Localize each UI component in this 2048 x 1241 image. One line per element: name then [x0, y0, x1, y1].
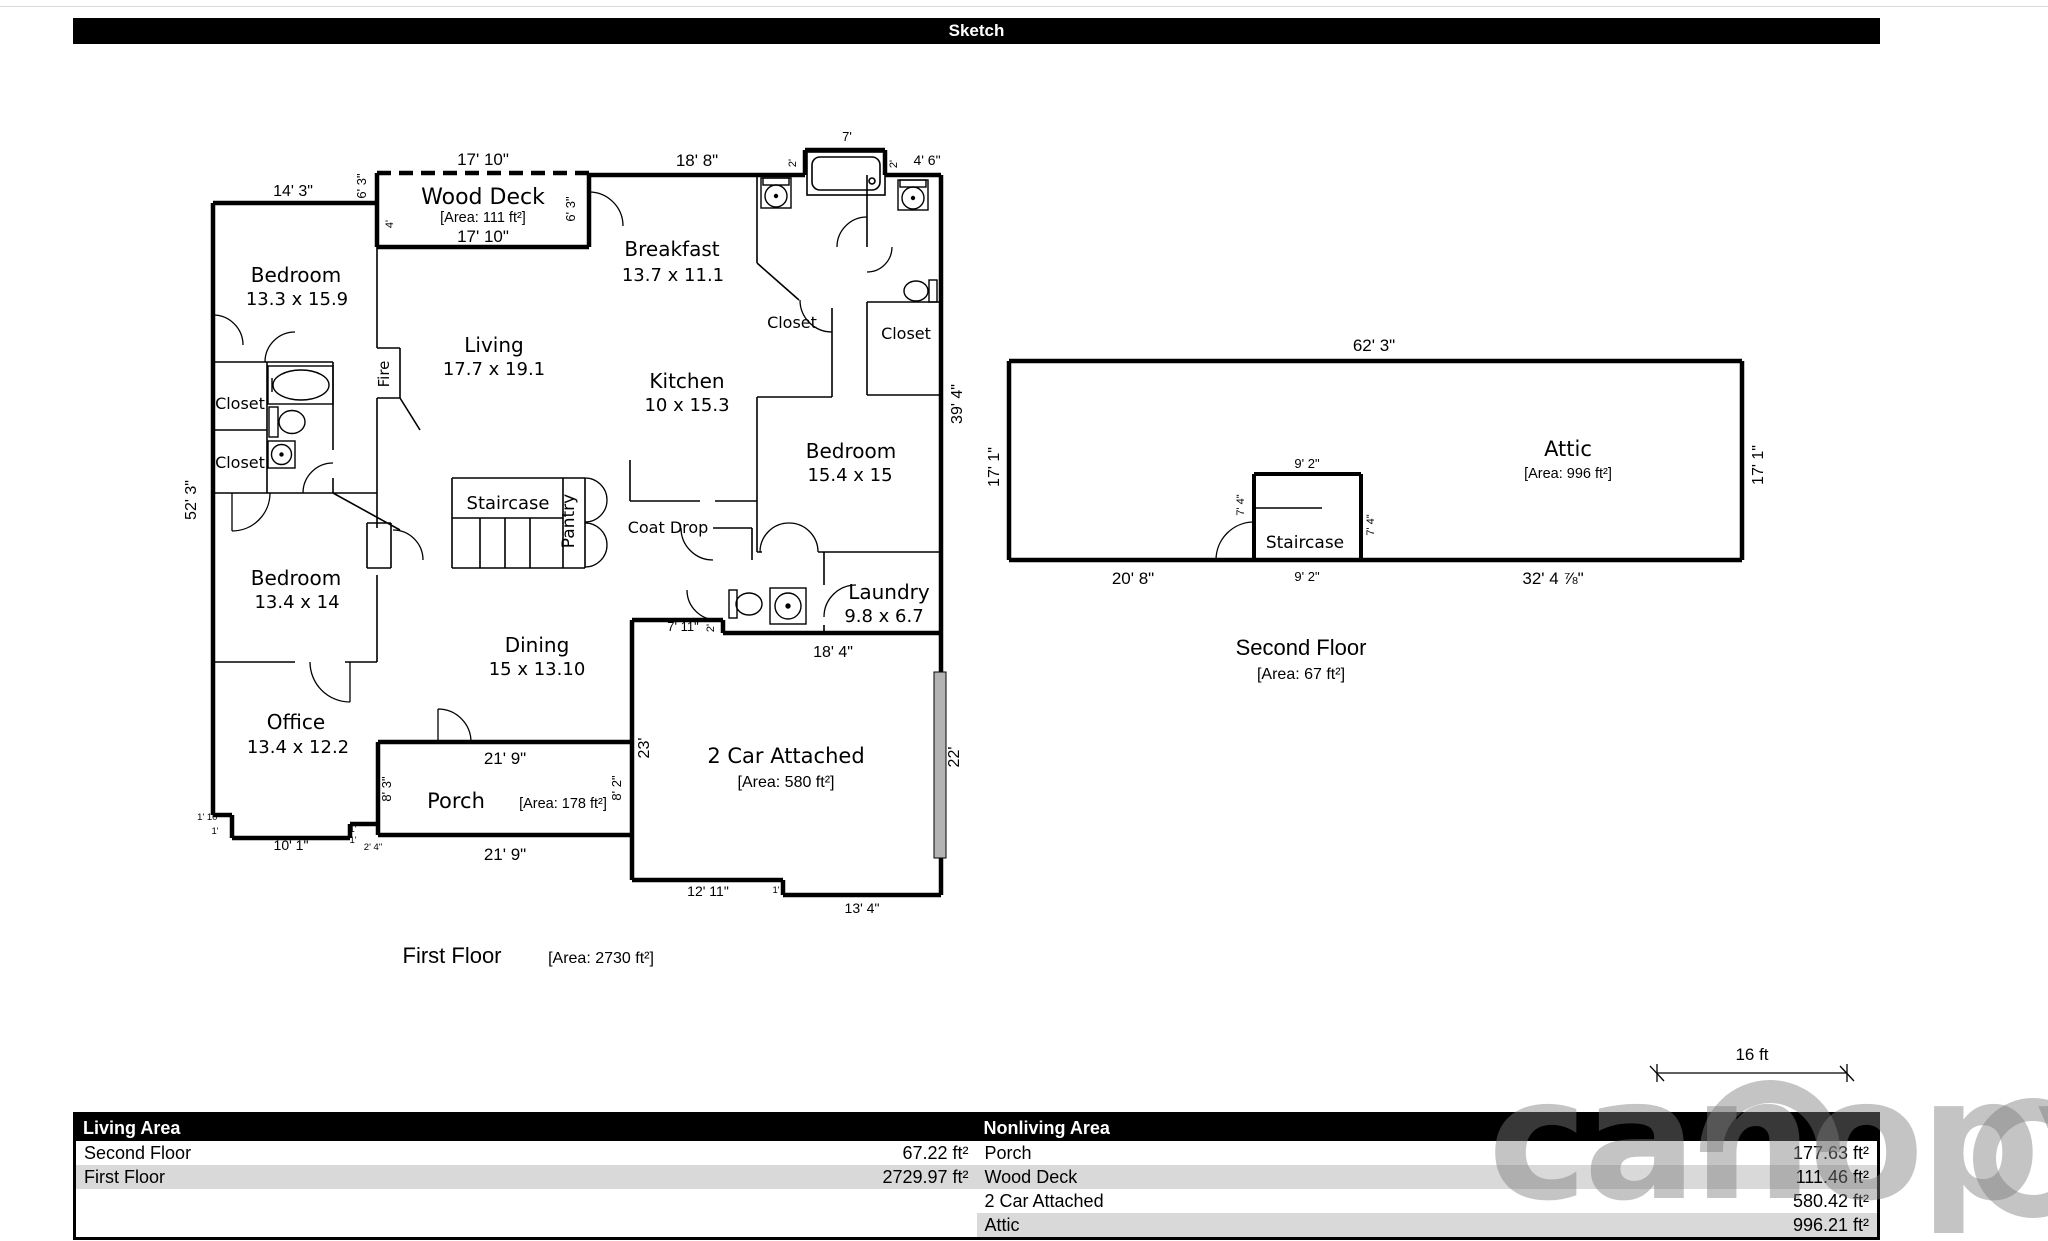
- dim-1ft-step2: 1': [349, 835, 356, 846]
- dim-18-8: 18' 8": [676, 151, 718, 170]
- sink-icon: [268, 441, 295, 468]
- row-value: 111.46 ft²: [1796, 1167, 1869, 1188]
- area-summary-table: Living Area Second Floor 67.22 ft² First…: [73, 1112, 1880, 1240]
- room-bedroom3: Bedroom: [251, 566, 341, 590]
- room-bedroom3-dims: 13.4 x 14: [254, 592, 339, 613]
- room-bedroom1-dims: 13.3 x 15.9: [246, 289, 348, 310]
- deck-inner-width: 17' 10": [457, 227, 509, 246]
- table-row: Attic 996.21 ft²: [977, 1213, 1878, 1237]
- room-wood-deck: Wood Deck: [421, 185, 545, 210]
- room-office-dims: 13.4 x 12.2: [247, 737, 349, 758]
- exterior-walls: [213, 150, 1742, 895]
- table-row-empty: [76, 1213, 977, 1237]
- floor-plan-canvas: Wood Deck [Area: 111 ft²] 17' 10" Bedroo…: [0, 0, 2048, 1241]
- table-row: Wood Deck 111.46 ft²: [977, 1165, 1878, 1189]
- dim-1ft-step1: 1': [349, 824, 356, 835]
- living-area-header-label: Living Area: [83, 1118, 180, 1139]
- row-value: 996.21 ft²: [1793, 1215, 1869, 1236]
- dim-20-8: 20' 8": [1112, 569, 1154, 588]
- room-garage: 2 Car Attached: [707, 744, 864, 768]
- room-porch-area: [Area: 178 ft²]: [519, 796, 607, 812]
- row-label: Second Floor: [84, 1143, 191, 1164]
- dim-17-1-left: 17' 1": [986, 447, 1003, 487]
- dim-7-4-right: 7' 4": [1365, 514, 1377, 535]
- toilet-top-right-icon: [898, 180, 928, 210]
- closet-right-1: Closet: [767, 313, 817, 332]
- toilet-icon: [269, 407, 305, 437]
- dim-13-4: 13' 4": [845, 900, 880, 916]
- nonliving-area-column: Nonliving Area Porch 177.63 ft² Wood Dec…: [977, 1115, 1878, 1237]
- dim-8-2: 8' 2": [609, 775, 624, 801]
- row-label: Porch: [985, 1143, 1032, 1164]
- room-kitchen: Kitchen: [649, 369, 724, 393]
- dim-62-3: 62' 3": [1353, 336, 1395, 355]
- row-label: 2 Car Attached: [985, 1191, 1104, 1212]
- dim-4-6: 4' 6": [913, 152, 940, 168]
- dim-52-3: 52' 3": [183, 480, 200, 520]
- sketch-page: Sketch: [0, 0, 2048, 1241]
- washer-icon: [770, 588, 806, 624]
- room-porch: Porch: [427, 789, 485, 813]
- dim-14-3: 14' 3": [273, 183, 313, 200]
- second-floor-caption: Second Floor: [1236, 635, 1367, 660]
- dim-7ft-tub: 7': [842, 129, 852, 144]
- toilet-top-left-icon: [761, 178, 791, 208]
- dim-17-1-right: 17' 1": [1750, 445, 1767, 485]
- row-value: 67.22 ft²: [902, 1143, 968, 1164]
- dim-deck-width-top: 17' 10": [457, 150, 509, 169]
- staircase-label-sf: Staircase: [1266, 533, 1344, 553]
- dim-10-1: 10' 1": [274, 837, 309, 853]
- table-row-empty: [76, 1189, 977, 1213]
- dim-8-3: 8' 3": [379, 776, 394, 802]
- closet-left-1: Closet: [215, 394, 265, 413]
- row-value: 580.42 ft²: [1793, 1191, 1869, 1212]
- living-area-header: Living Area: [76, 1115, 977, 1141]
- table-row: 2 Car Attached 580.42 ft²: [977, 1189, 1878, 1213]
- dim-1ft-bl: 1': [211, 826, 218, 837]
- room-attic: Attic: [1544, 437, 1592, 461]
- dim-2ft-garage: 2': [705, 624, 717, 632]
- room-laundry: Laundry: [848, 580, 930, 604]
- room-kitchen-dims: 10 x 15.3: [644, 395, 729, 416]
- room-laundry-dims: 9.8 x 6.7: [844, 606, 923, 627]
- row-value: 177.63 ft²: [1793, 1143, 1869, 1164]
- nonliving-area-header-label: Nonliving Area: [984, 1118, 1110, 1139]
- dim-22: 22': [946, 747, 963, 768]
- garage-door: [934, 672, 946, 858]
- dim-9-2-bottom: 9' 2": [1294, 569, 1320, 584]
- door-arcs: [213, 192, 1254, 742]
- nonliving-area-header: Nonliving Area: [977, 1115, 1878, 1141]
- first-floor-caption: First Floor: [403, 943, 502, 968]
- dim-1-10: 1' 10": [197, 812, 221, 823]
- dim-7-4-left: 7' 4": [1235, 494, 1247, 515]
- pantry-label: Pantry: [559, 494, 579, 548]
- toilet-right-room-icon: [904, 280, 937, 302]
- dim-2ft-tub-right: 2': [888, 160, 900, 168]
- closet-right-2: Closet: [881, 324, 931, 343]
- dim-21-9-bottom: 21' 9": [484, 845, 526, 864]
- room-dining-dims: 15 x 13.10: [489, 659, 586, 680]
- living-area-column: Living Area Second Floor 67.22 ft² First…: [76, 1115, 977, 1237]
- room-bedroom1: Bedroom: [251, 263, 341, 287]
- dim-2-4: 2' 4": [364, 842, 382, 853]
- staircase-label-ff: Staircase: [467, 493, 550, 514]
- table-row: Porch 177.63 ft²: [977, 1141, 1878, 1165]
- room-living-dims: 17.7 x 19.1: [443, 359, 545, 380]
- room-attic-area: [Area: 996 ft²]: [1524, 466, 1612, 482]
- dim-6-3-left: 6' 3": [354, 173, 369, 199]
- second-floor-caption-area: [Area: 67 ft²]: [1257, 666, 1345, 683]
- dim-7-11: 7' 11": [667, 619, 699, 634]
- dim-9-2-top: 9' 2": [1294, 456, 1320, 471]
- dim-23: 23': [636, 738, 653, 759]
- dim-6-3-right: 6' 3": [563, 196, 578, 222]
- dim-18-4: 18' 4": [813, 644, 853, 661]
- room-living: Living: [464, 333, 523, 357]
- table-row: First Floor 2729.97 ft²: [76, 1165, 977, 1189]
- dim-32-4: 32' 4 ⅞": [1522, 569, 1583, 588]
- laundry-toilet-icon: [729, 590, 762, 618]
- dim-2ft-tub-left: 2': [787, 159, 799, 167]
- dim-12-11: 12' 11": [687, 883, 729, 899]
- scale-bar-label: 16 ft: [1735, 1045, 1768, 1064]
- room-office: Office: [267, 710, 325, 734]
- dim-1ft-garage: 1': [772, 885, 779, 896]
- scale-bar: [1650, 1064, 1854, 1082]
- room-breakfast: Breakfast: [624, 237, 719, 261]
- room-wood-deck-area: [Area: 111 ft²]: [440, 210, 526, 226]
- bathtub-icon: [268, 366, 333, 404]
- first-floor-caption-area: [Area: 2730 ft²]: [548, 950, 654, 967]
- dim-4ft-deck: 4': [384, 220, 396, 228]
- room-dining: Dining: [505, 633, 570, 657]
- row-label: First Floor: [84, 1167, 165, 1188]
- room-bedroom2-dims: 15.4 x 15: [807, 465, 892, 486]
- row-label: Wood Deck: [985, 1167, 1078, 1188]
- room-bedroom2: Bedroom: [806, 439, 896, 463]
- row-label: Attic: [985, 1215, 1020, 1236]
- row-value: 2729.97 ft²: [882, 1167, 968, 1188]
- room-breakfast-dims: 13.7 x 11.1: [622, 265, 724, 286]
- bathtub-top-icon: [807, 152, 885, 195]
- closet-left-2: Closet: [215, 453, 265, 472]
- room-garage-area: [Area: 580 ft²]: [738, 774, 835, 791]
- fireplace-label: Fire: [375, 361, 393, 388]
- coat-drop-label: Coat Drop: [628, 518, 709, 537]
- dim-21-9-top: 21' 9": [484, 749, 526, 768]
- table-row: Second Floor 67.22 ft²: [76, 1141, 977, 1165]
- dim-39-4: 39' 4": [949, 384, 966, 424]
